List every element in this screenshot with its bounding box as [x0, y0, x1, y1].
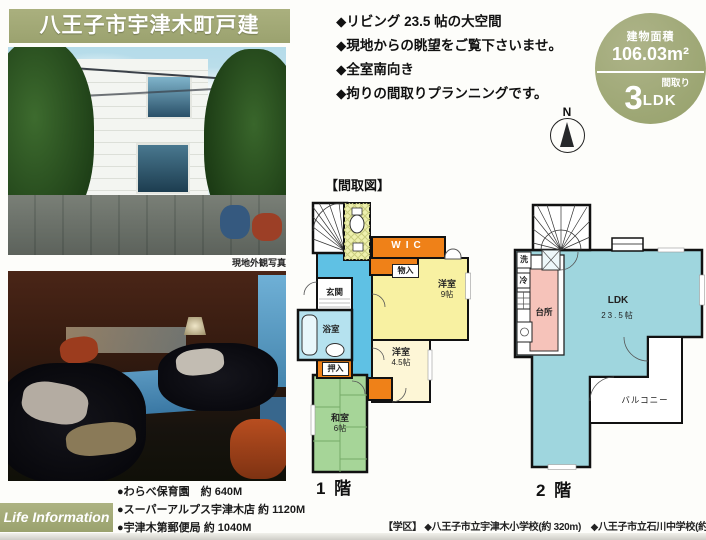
- fridge-label: 冷: [517, 276, 530, 286]
- floor2-label: 2 階: [536, 476, 573, 501]
- western-room-9-label: 洋室 9帖: [425, 279, 469, 300]
- room-size: 6帖: [322, 424, 358, 434]
- room-name: 洋室: [377, 347, 425, 358]
- feature-list: ◆リビング 23.5 帖の大空間 ◆現地からの眺望をご覧下さいませ。 ◆全室南向…: [336, 10, 606, 106]
- ldk-label: LDK: [593, 295, 643, 308]
- room-name: 洋室: [425, 279, 469, 290]
- feature-item: ◆リビング 23.5 帖の大空間: [336, 10, 606, 34]
- exterior-photo: [8, 47, 286, 255]
- ldk-size-label: 23.5帖: [586, 311, 650, 321]
- bathroom-label: 浴室: [317, 324, 345, 335]
- upper-window: [146, 75, 192, 119]
- feature-item: ◆現地からの眺望をご覧下さいませ。: [336, 34, 606, 58]
- life-item-nursery: ●わらべ保育園 約 640M: [117, 483, 242, 499]
- kitchen-label: 台所: [528, 307, 560, 318]
- school-district: 【学区】 ◆八王子市立宇津木小学校(約 320m) ◆八王子市立石川中学校(約 …: [383, 518, 706, 533]
- room-name: 和室: [322, 413, 358, 424]
- garden-chair: [252, 213, 282, 241]
- japanese-room-label: 和室 6帖: [322, 413, 358, 434]
- floorplan-section-title: 【間取図】: [325, 175, 390, 194]
- compass-icon: [550, 118, 585, 153]
- compass-north-label: N: [545, 105, 589, 119]
- floorplan-2f-drawing: [508, 195, 706, 485]
- plan-unit: LDK: [643, 92, 677, 109]
- badge-divider: [597, 71, 704, 73]
- plan-number: 3: [624, 79, 642, 116]
- wic-label: WIC: [372, 240, 445, 253]
- floorplan-1f-drawing: [295, 195, 475, 485]
- page-title: 八王子市宇津木町戸建: [9, 9, 290, 43]
- western-room-45-label: 洋室 4.5帖: [377, 347, 425, 368]
- washer-label: 洗: [517, 255, 531, 265]
- interior-photo: [8, 271, 286, 481]
- feature-item: ◆拘りの間取りプランニングです。: [336, 82, 606, 106]
- floor1-label: 1 階: [316, 474, 353, 499]
- life-item-supermarket: ●スーパーアルプス宇津木店 約 1120M: [117, 501, 305, 517]
- feature-item: ◆全室南向き: [336, 58, 606, 82]
- balcony-label: バルコニー: [613, 395, 677, 406]
- scan-edge-artifact: [0, 533, 706, 540]
- floorplan-1f: WIC 物入 玄関 浴室 押入 洋室 9帖 洋室 4.5帖 和室 6帖: [295, 195, 475, 485]
- closet-label: 押入: [322, 362, 349, 376]
- room-size: 9帖: [425, 290, 469, 300]
- building-area-label: 建物面積: [595, 28, 706, 44]
- entrance-label: 玄関: [319, 287, 350, 298]
- floorplan-type-value: 3LDK: [595, 79, 706, 117]
- exterior-photo-caption: 現地外観写真: [186, 256, 286, 269]
- figure: [220, 205, 250, 239]
- floorplan-2f: 台所 LDK 23.5帖 バルコニー 洗 冷: [508, 195, 706, 485]
- lower-window: [136, 143, 190, 194]
- area-badge: 建物面積 106.03m² 間取り 3LDK: [595, 13, 706, 124]
- compass-needle: [560, 122, 574, 147]
- storage-label: 物入: [392, 264, 419, 278]
- flyer-page: { "title": "八王子市宇津木町戸建", "features": [ "…: [0, 0, 706, 540]
- building-area-value: 106.03m²: [595, 44, 706, 65]
- orange-sofa-corner: [230, 419, 286, 479]
- life-information-label: Life Information: [0, 503, 113, 532]
- room-size: 4.5帖: [377, 358, 425, 368]
